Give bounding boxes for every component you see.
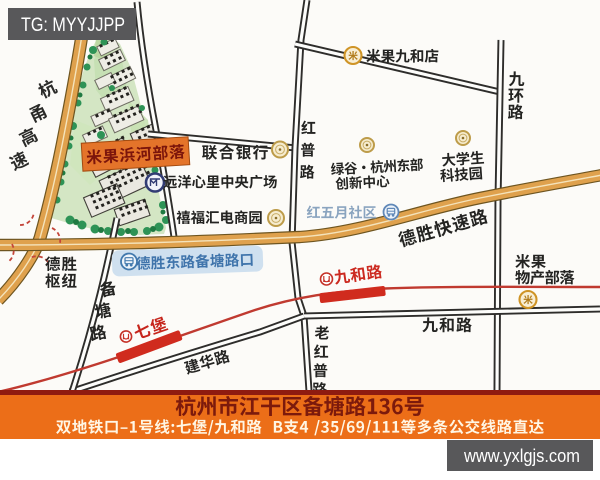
svg-text:TG: MYYJJPP: TG: MYYJJPP [21,14,125,36]
svg-text:www.yxlgjs.com: www.yxlgjs.com [463,445,580,466]
